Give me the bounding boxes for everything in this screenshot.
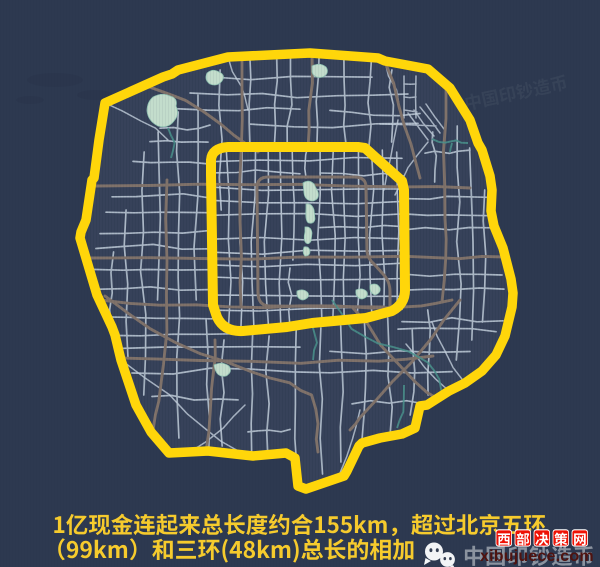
svg-text:xibujuece.com: xibujuece.com (480, 548, 594, 565)
